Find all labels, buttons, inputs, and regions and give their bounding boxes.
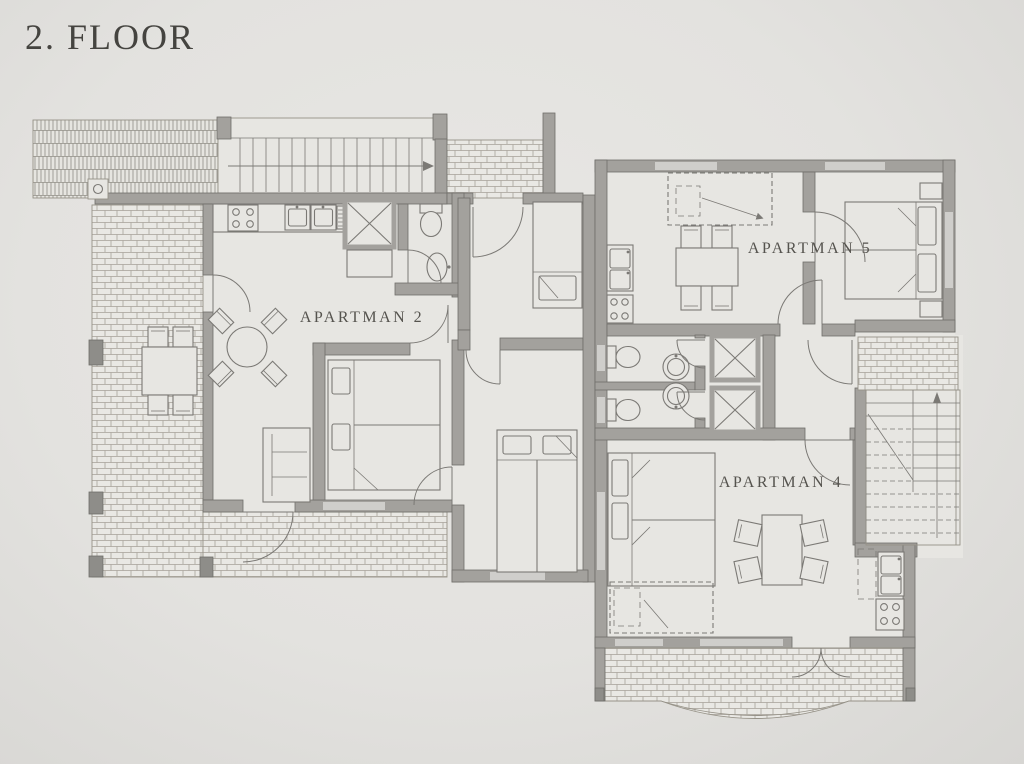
- floor-plan-page: 2. FLOOR: [0, 0, 1024, 764]
- apartment-4-bed-symbol: [608, 453, 715, 586]
- shaft-symbol: [345, 200, 394, 277]
- main-staircase: [217, 114, 447, 193]
- bedroom-b-bed-symbol: [328, 360, 440, 490]
- floor-plan-drawing: APARTMAN 2 APARTMAN 5 APARTMAN 4: [0, 0, 1024, 764]
- toilet-symbol: [616, 347, 640, 368]
- apartment-5-kitchen-symbol: [607, 245, 633, 323]
- entry-landing: [435, 113, 555, 204]
- sofa-symbol: [263, 428, 310, 502]
- toilet-tank-symbol: [607, 346, 616, 368]
- shaft-symbol: [712, 336, 758, 380]
- apartment-5-label: APARTMAN 5: [748, 240, 872, 257]
- single-bed-symbol: [533, 202, 582, 308]
- toilet-symbol: [616, 400, 640, 421]
- closet-symbol: [347, 250, 392, 277]
- balcony: [595, 648, 915, 719]
- basin-symbol: [663, 354, 689, 380]
- bedroom-c-bed-symbol: [497, 430, 577, 572]
- round-table-symbol: [227, 327, 267, 367]
- corner-column: [88, 179, 108, 199]
- shaft-symbol: [712, 388, 758, 432]
- apartment-4-label: APARTMAN 4: [719, 474, 843, 491]
- roof-canopy: [33, 120, 218, 198]
- basin-symbol: [663, 383, 689, 409]
- toilet-tank-symbol: [607, 399, 616, 421]
- apartment-2-label: APARTMAN 2: [300, 309, 424, 326]
